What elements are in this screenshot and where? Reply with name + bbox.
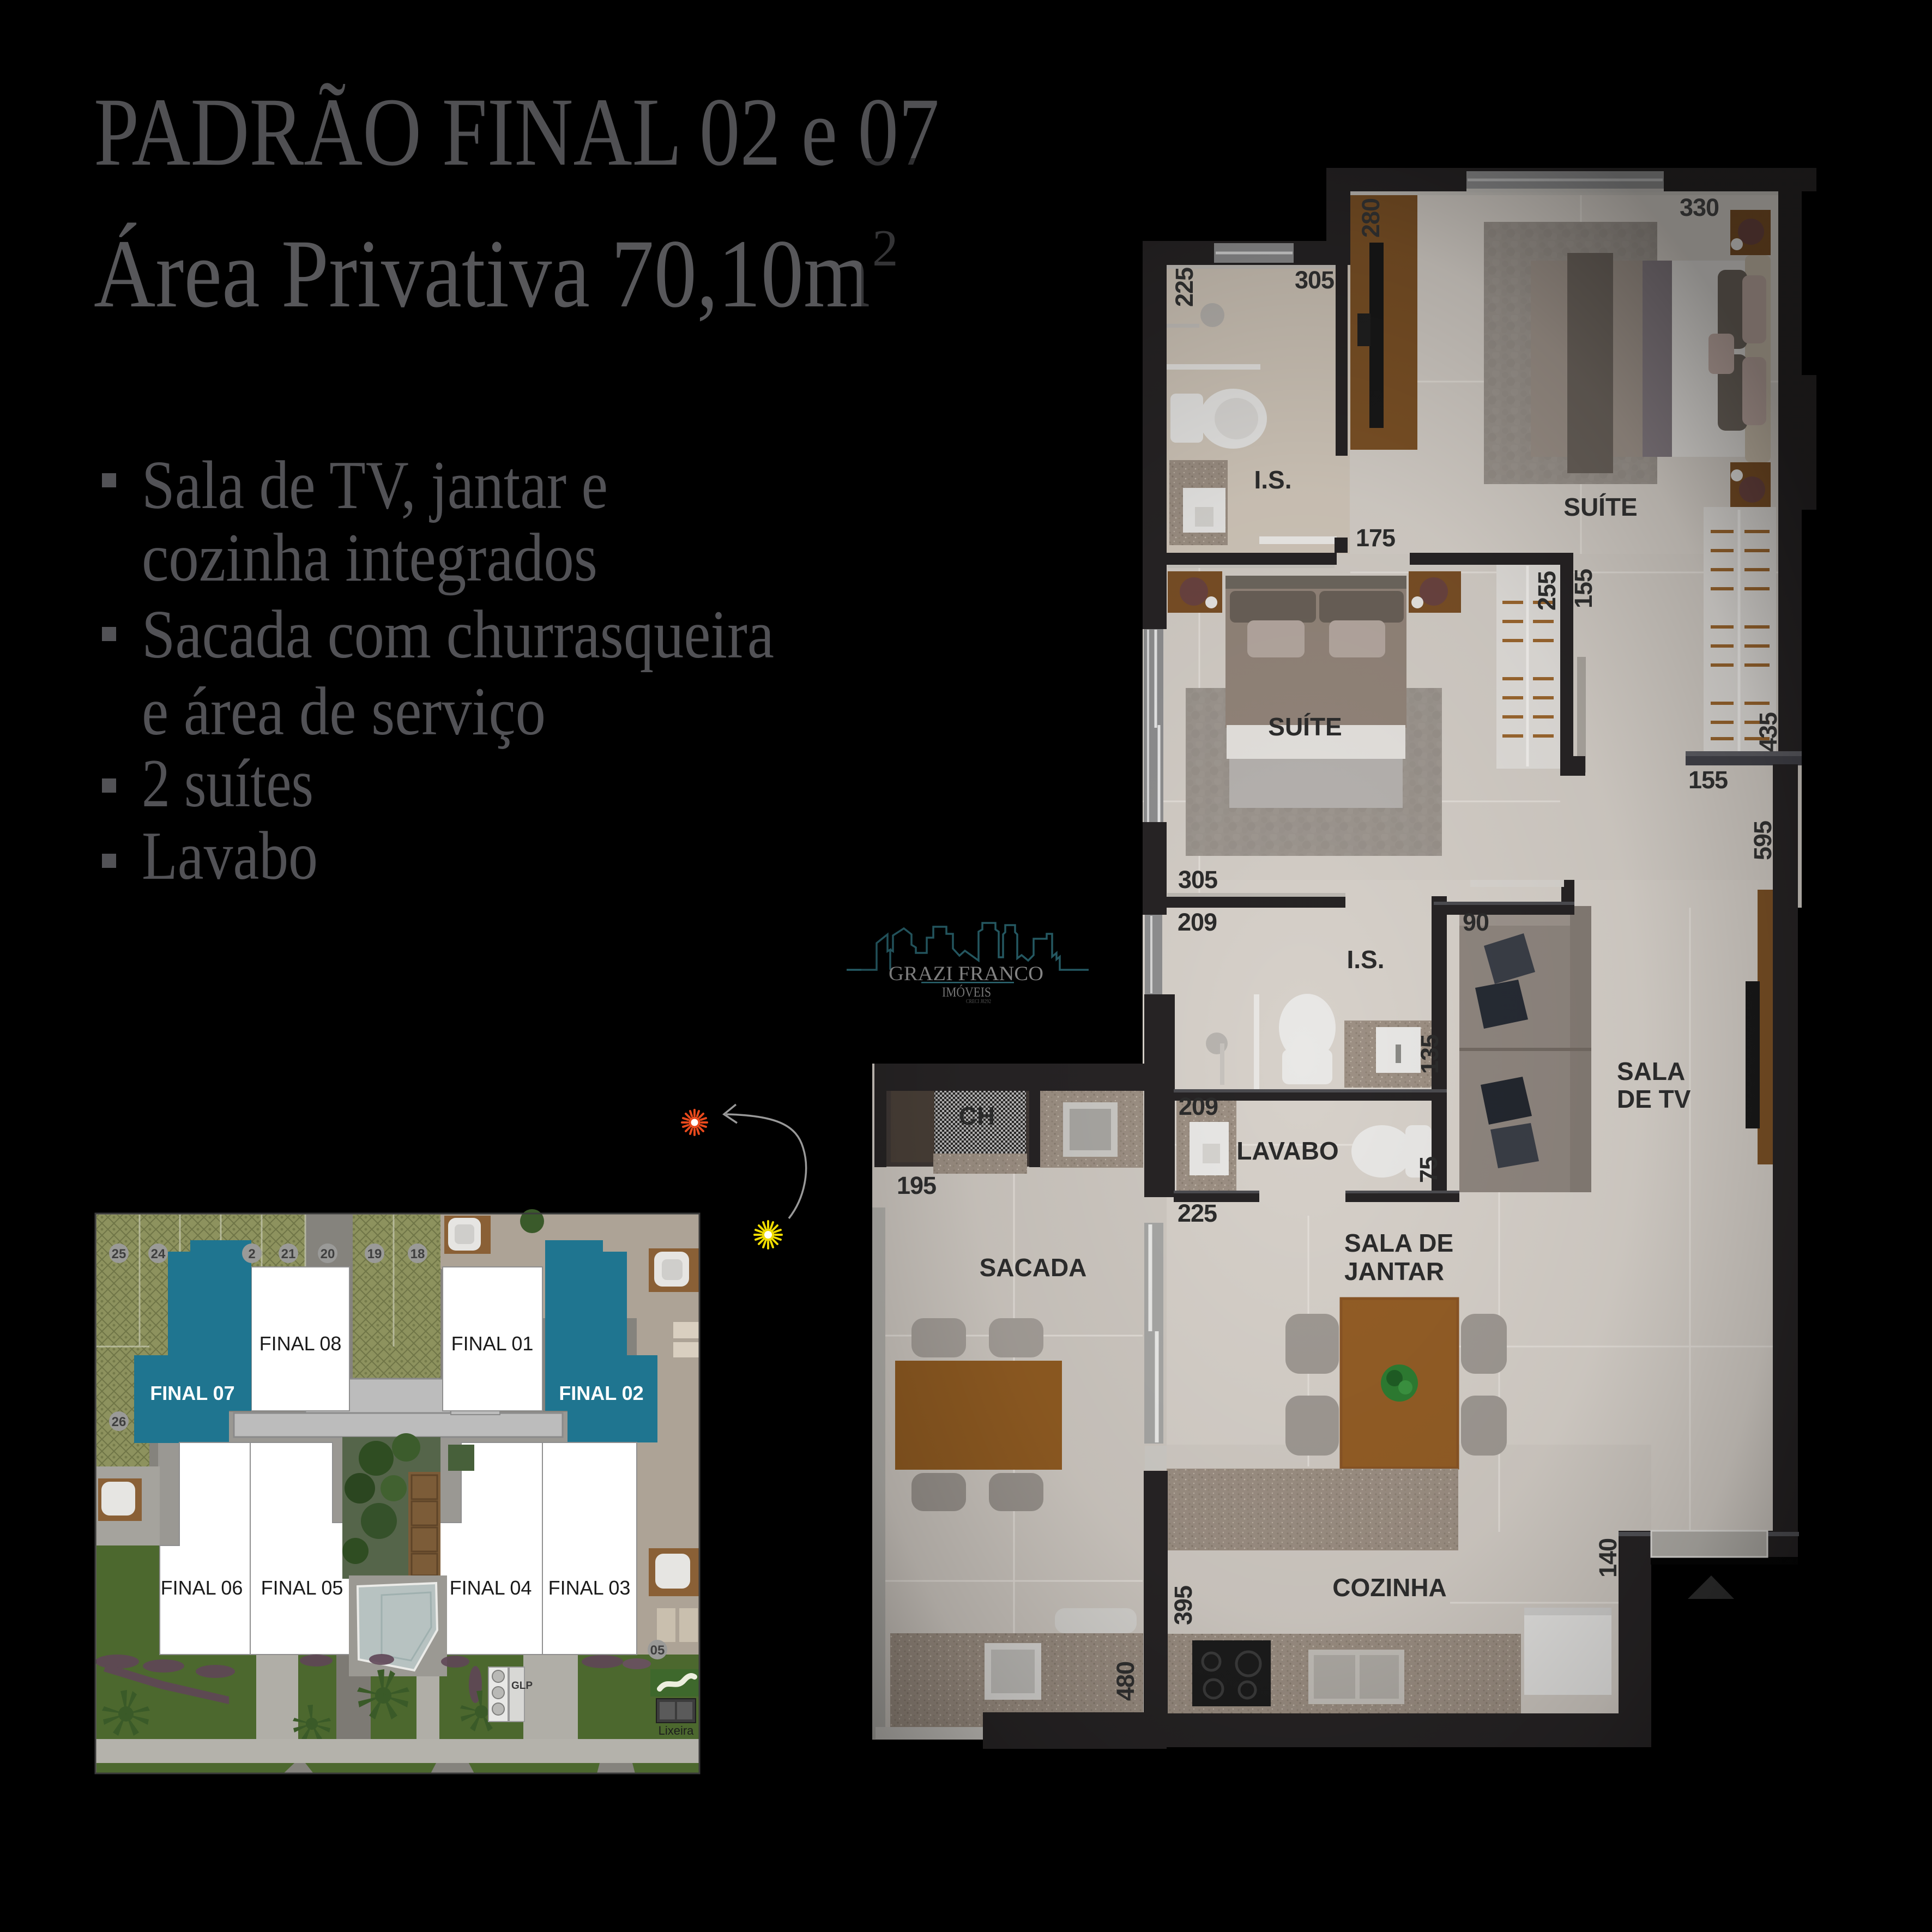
svg-text:cozinha integrados: cozinha integrados — [142, 520, 597, 596]
svg-text:Sacada com churrasqueira: Sacada com churrasqueira — [142, 597, 774, 673]
svg-text:330: 330 — [1680, 194, 1719, 221]
svg-text:DE TV: DE TV — [1617, 1085, 1691, 1113]
svg-text:18: 18 — [410, 1247, 425, 1261]
svg-text:24: 24 — [151, 1247, 166, 1261]
svg-text:175: 175 — [1356, 524, 1395, 552]
svg-text:435: 435 — [1754, 713, 1782, 752]
svg-text:21: 21 — [281, 1247, 296, 1261]
svg-text:I.S.: I.S. — [1254, 466, 1291, 494]
svg-text:2 suítes: 2 suítes — [142, 746, 313, 822]
svg-text:COZINHA: COZINHA — [1332, 1573, 1447, 1602]
svg-text:20: 20 — [321, 1247, 335, 1261]
svg-text:I.S.: I.S. — [1347, 945, 1384, 974]
svg-text:209: 209 — [1179, 1092, 1218, 1120]
svg-text:FINAL 08: FINAL 08 — [259, 1332, 342, 1355]
svg-text:GLP: GLP — [511, 1680, 533, 1692]
svg-text:FINAL 02: FINAL 02 — [559, 1382, 643, 1404]
svg-text:305: 305 — [1295, 266, 1334, 294]
svg-text:155: 155 — [1688, 766, 1728, 794]
svg-text:FINAL 04: FINAL 04 — [450, 1577, 532, 1599]
svg-text:Lavabo: Lavabo — [142, 818, 318, 894]
svg-text:225: 225 — [1170, 268, 1198, 307]
svg-text:209: 209 — [1178, 908, 1217, 936]
svg-text:195: 195 — [897, 1172, 936, 1199]
svg-text:25: 25 — [112, 1247, 126, 1261]
svg-text:FINAL 06: FINAL 06 — [161, 1577, 243, 1599]
svg-text:2: 2 — [248, 1247, 255, 1261]
svg-text:140: 140 — [1594, 1538, 1622, 1578]
svg-text:SUÍTE: SUÍTE — [1563, 493, 1637, 521]
svg-text:135: 135 — [1416, 1035, 1444, 1074]
svg-text:255: 255 — [1533, 571, 1561, 611]
svg-text:CH: CH — [959, 1102, 995, 1130]
svg-text:SACADA: SACADA — [980, 1253, 1087, 1282]
svg-text:e área de serviço: e área de serviço — [142, 674, 546, 750]
svg-text:Área Privativa 70,10m: Área Privativa 70,10m — [94, 219, 870, 328]
svg-text:Sala de TV, jantar e: Sala de TV, jantar e — [142, 448, 608, 523]
svg-text:155: 155 — [1569, 569, 1597, 608]
svg-text:FINAL 01: FINAL 01 — [451, 1332, 534, 1355]
svg-text:225: 225 — [1178, 1199, 1217, 1227]
svg-text:595: 595 — [1749, 821, 1777, 860]
svg-text:JANTAR: JANTAR — [1344, 1257, 1444, 1285]
svg-text:LAVABO: LAVABO — [1236, 1137, 1338, 1165]
svg-text:SUÍTE: SUÍTE — [1268, 713, 1342, 741]
svg-text:SALA DE: SALA DE — [1344, 1229, 1453, 1257]
svg-text:26: 26 — [112, 1415, 126, 1429]
svg-text:19: 19 — [367, 1247, 382, 1261]
svg-text:90: 90 — [1463, 908, 1489, 936]
svg-text:305: 305 — [1178, 866, 1217, 893]
svg-text:PADRÃO FINAL 02 e 07: PADRÃO FINAL 02 e 07 — [94, 77, 939, 186]
svg-text:FINAL 05: FINAL 05 — [261, 1577, 343, 1599]
svg-text:FINAL 03: FINAL 03 — [548, 1577, 631, 1599]
svg-text:480: 480 — [1112, 1662, 1139, 1701]
svg-text:Lixeira: Lixeira — [659, 1724, 695, 1737]
svg-text:395: 395 — [1169, 1586, 1197, 1625]
svg-text:05: 05 — [650, 1643, 665, 1658]
svg-text:280: 280 — [1357, 198, 1385, 238]
svg-text:75: 75 — [1415, 1157, 1442, 1183]
svg-text:SALA: SALA — [1617, 1057, 1685, 1085]
svg-text:FINAL 07: FINAL 07 — [150, 1382, 234, 1404]
